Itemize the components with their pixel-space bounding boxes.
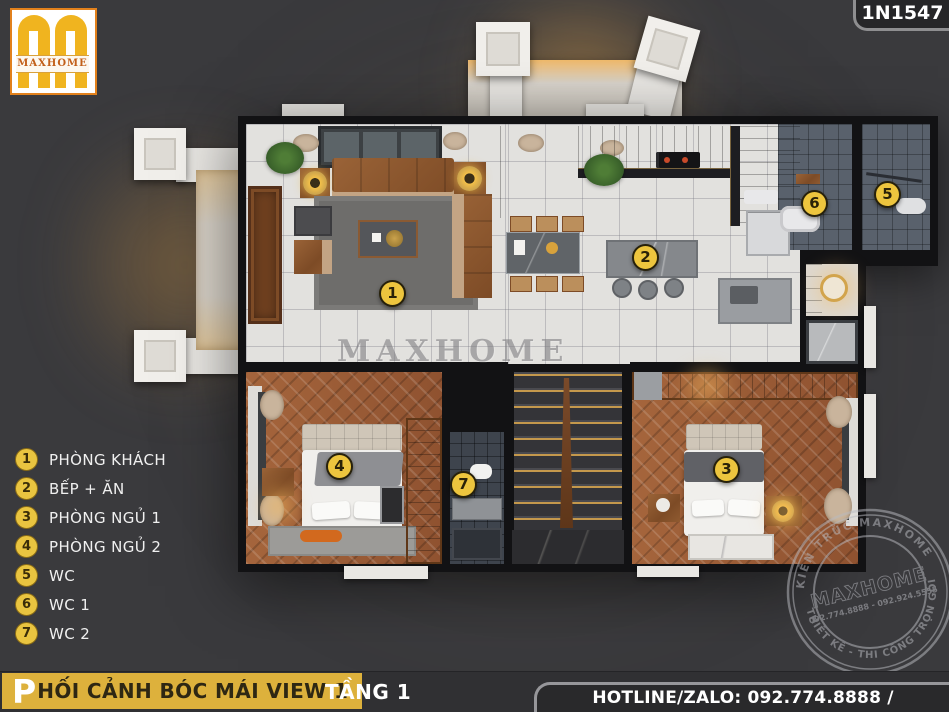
round-mirror [820, 274, 848, 302]
wall-stub-bottom-left [344, 566, 428, 579]
bed2-headboard [302, 424, 402, 452]
towel [300, 530, 342, 542]
hotline-badge: HOTLINE/ZALO: 092.774.8888 / 092.924.555… [534, 682, 949, 712]
room-marker-3: 3 [713, 456, 740, 483]
wc1-shelf [796, 174, 820, 184]
top-porch-column-left [476, 22, 530, 76]
kitchen-counter-marble-edge-right [730, 126, 740, 226]
bed1-headboard [686, 424, 762, 450]
legend-label: WC [49, 567, 75, 585]
view-title-initial: P [12, 675, 36, 708]
maxhome-logo: MAXHOME [10, 8, 97, 95]
cooktop-burner [682, 157, 688, 163]
curtain [443, 132, 467, 150]
bed2-pillow [311, 501, 350, 521]
bedroom1-marble-rug [688, 534, 774, 560]
wall-hall-right [630, 362, 800, 372]
logo-wordmark: MAXHOME [16, 55, 89, 73]
bedroom2-wardrobe [406, 418, 442, 564]
legend-item: 2 BẾP + ĂN [15, 477, 166, 500]
legend-number: 6 [15, 593, 38, 616]
legend-number: 2 [15, 477, 38, 500]
dining-chair [536, 216, 558, 232]
legend-number: 4 [15, 535, 38, 558]
table-lamp [772, 500, 794, 522]
logo-m-icon: MAXHOME [18, 15, 87, 88]
curtain [826, 396, 852, 428]
plant [584, 154, 624, 186]
dining-chair [562, 276, 584, 292]
dining-chair [510, 216, 532, 232]
bed1-pillow [692, 499, 725, 517]
legend-label: PHÒNG KHÁCH [49, 451, 166, 469]
view-title-box: P HỐI CẢNH BÓC MÁI VIEW 1 [2, 673, 362, 709]
dining-chair [536, 276, 558, 292]
partition-living-kitchen [500, 126, 512, 218]
wall-ac-unit [744, 190, 778, 204]
legend-label: WC 1 [49, 596, 90, 614]
island-stool [638, 280, 658, 300]
armchair [294, 240, 332, 274]
lamp-white [656, 498, 670, 512]
stair-landing [512, 530, 624, 564]
legend-number: 7 [15, 622, 38, 645]
floor-label: TẦNG 1 [325, 672, 411, 712]
curtain [260, 390, 284, 420]
window-bay [806, 320, 858, 364]
watermark-text: MAXHOME [337, 334, 569, 369]
dining-napkin [514, 240, 525, 255]
armchair-table [294, 206, 332, 236]
table-lamp [457, 166, 482, 191]
legend-item: 6 WC 1 [15, 593, 166, 616]
room-marker-1: 1 [379, 280, 406, 307]
main-door-panel [248, 186, 282, 324]
wc-bath-mat [896, 198, 926, 214]
room-marker-4: 4 [326, 453, 353, 480]
left-porch-floor [196, 170, 244, 350]
legend-item: 3 PHÒNG NGỦ 1 [15, 506, 166, 529]
footer-bar: P HỐI CẢNH BÓC MÁI VIEW 1 TẦNG 1 HOTLINE… [0, 671, 949, 712]
plant [266, 142, 304, 174]
room-marker-7: 7 [450, 471, 477, 498]
room-marker-2: 2 [632, 244, 659, 271]
dining-chair [562, 216, 584, 232]
wall-stub-right-lower [864, 394, 876, 478]
left-porch-column-top [134, 128, 186, 180]
left-porch-column-bottom [134, 330, 186, 382]
column-cap [144, 340, 177, 373]
tv [380, 486, 404, 524]
bedroom1-wardrobe-panel [634, 372, 662, 400]
column-cap [486, 32, 520, 66]
legend-label: PHÒNG NGỦ 1 [49, 509, 161, 527]
legend-item: 1 PHÒNG KHÁCH [15, 448, 166, 471]
dining-chair [510, 276, 532, 292]
room-marker-5: 5 [874, 181, 901, 208]
room-marker-6: 6 [801, 190, 828, 217]
legend-item: 5 WC [15, 564, 166, 587]
island-stool [612, 278, 632, 298]
dining-plate [546, 242, 558, 254]
island-stool [664, 278, 684, 298]
column-cap [144, 138, 177, 171]
view-title-text: HỐI CẢNH BÓC MÁI VIEW 1 [37, 679, 348, 703]
legend-label: PHÒNG NGỦ 2 [49, 538, 161, 556]
legend-item: 4 PHÒNG NGỦ 2 [15, 535, 166, 558]
bedroom1-wardrobe [632, 372, 858, 400]
wc2-shower [452, 528, 502, 560]
room-legend: 1 PHÒNG KHÁCH 2 BẾP + ĂN 3 PHÒNG NGỦ 1 4… [15, 448, 166, 645]
nightstand [262, 468, 294, 496]
legend-label: WC 2 [49, 625, 90, 643]
wall-wc2-top [442, 424, 504, 432]
poster-canvas: MAXHOME 1 2 3 4 5 6 7 KIẾN TRÚC MAXHOME … [0, 0, 949, 712]
wc2-vanity [452, 498, 502, 520]
table-lamp [303, 171, 327, 195]
cooktop-burner [664, 157, 670, 163]
wall-wc-divider [852, 124, 862, 250]
top-porch-brace-left [490, 72, 522, 118]
wall-stub-right-upper [864, 306, 876, 368]
cooktop [656, 152, 700, 168]
curtain [260, 494, 284, 526]
wall-stub-bottom-right [637, 566, 699, 577]
legend-number: 1 [15, 448, 38, 471]
wall-wc2-left [442, 424, 450, 564]
coffee-table-napkin [372, 233, 381, 242]
curtain [518, 134, 544, 152]
bedroom2-rug [268, 526, 416, 556]
bed1-pillow [727, 499, 760, 517]
legend-number: 5 [15, 564, 38, 587]
legend-item: 7 WC 2 [15, 622, 166, 645]
sofa-right [452, 194, 492, 298]
coffee-table-tray [386, 230, 403, 247]
legend-number: 3 [15, 506, 38, 529]
legend-label: BẾP + ĂN [49, 480, 125, 498]
column-cap [646, 28, 688, 70]
project-code-badge: 1N1547 [853, 0, 949, 31]
kitchen-sink [730, 286, 758, 304]
